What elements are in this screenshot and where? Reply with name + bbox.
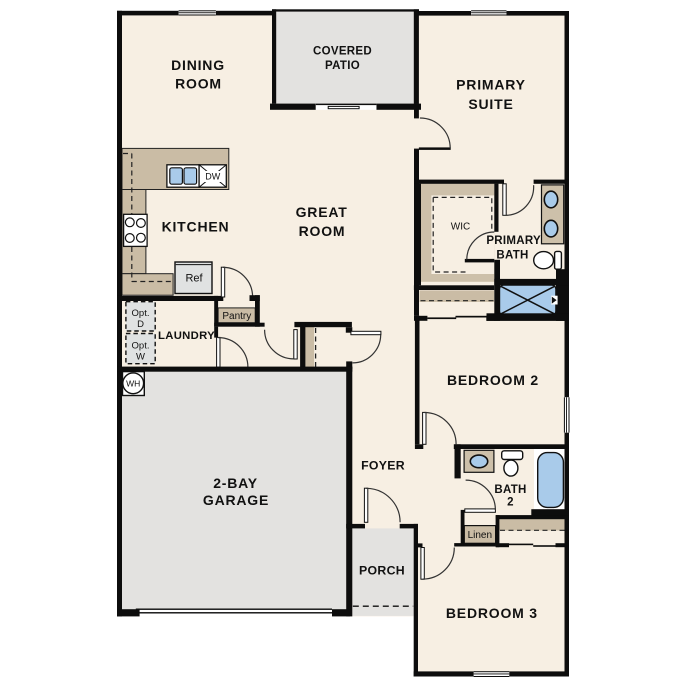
svg-text:Ref: Ref — [185, 273, 203, 285]
svg-text:D: D — [137, 319, 144, 330]
svg-text:Opt.: Opt. — [132, 308, 150, 319]
svg-text:PATIO: PATIO — [325, 60, 360, 72]
svg-text:PRIMARY: PRIMARY — [456, 76, 526, 92]
svg-text:PORCH: PORCH — [359, 564, 405, 578]
svg-text:BEDROOM 2: BEDROOM 2 — [447, 372, 539, 388]
svg-text:DW: DW — [205, 172, 220, 182]
svg-text:BEDROOM 3: BEDROOM 3 — [446, 605, 538, 621]
svg-text:WH: WH — [126, 378, 140, 388]
svg-text:W: W — [136, 351, 145, 362]
svg-text:PRIMARY: PRIMARY — [486, 235, 541, 247]
svg-text:WIC: WIC — [451, 222, 470, 233]
svg-text:BATH: BATH — [494, 484, 526, 496]
svg-text:ROOM: ROOM — [175, 75, 222, 91]
svg-text:SUITE: SUITE — [468, 96, 513, 112]
svg-text:DINING: DINING — [171, 57, 225, 73]
svg-text:Opt.: Opt. — [132, 340, 150, 351]
svg-text:LAUNDRY: LAUNDRY — [158, 330, 215, 342]
svg-text:COVERED: COVERED — [313, 46, 372, 58]
svg-text:2-BAY: 2-BAY — [213, 475, 258, 491]
svg-text:FOYER: FOYER — [361, 459, 405, 473]
svg-text:2: 2 — [507, 496, 514, 508]
svg-text:BATH: BATH — [496, 250, 528, 262]
svg-text:GARAGE: GARAGE — [203, 492, 269, 508]
svg-text:GREAT: GREAT — [296, 204, 348, 220]
svg-text:ROOM: ROOM — [299, 223, 346, 239]
svg-text:Pantry: Pantry — [222, 311, 251, 322]
svg-text:KITCHEN: KITCHEN — [162, 218, 230, 234]
svg-text:Linen: Linen — [468, 530, 492, 541]
